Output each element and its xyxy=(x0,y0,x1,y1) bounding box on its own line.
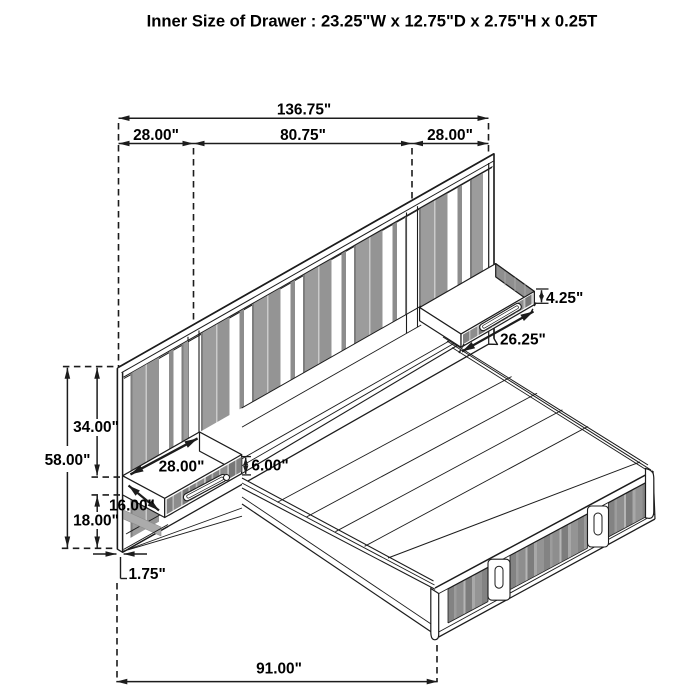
svg-text:58.00": 58.00" xyxy=(45,452,91,469)
svg-text:18.00": 18.00" xyxy=(73,512,119,529)
svg-text:28.00": 28.00" xyxy=(427,127,473,144)
svg-text:16.00": 16.00" xyxy=(109,498,155,515)
svg-text:80.75": 80.75" xyxy=(280,127,326,144)
svg-text:1.75": 1.75" xyxy=(129,566,166,583)
svg-text:26.25": 26.25" xyxy=(500,331,546,348)
svg-text:28.00": 28.00" xyxy=(133,127,179,144)
svg-text:136.75": 136.75" xyxy=(277,102,331,119)
svg-text:34.00": 34.00" xyxy=(73,419,119,436)
svg-text:28.00": 28.00" xyxy=(159,458,205,475)
svg-text:91.00": 91.00" xyxy=(256,660,302,677)
svg-text:6.00": 6.00" xyxy=(251,457,288,474)
svg-text:Inner Size of Drawer : 23.25"W: Inner Size of Drawer : 23.25"W x 12.75"D… xyxy=(147,12,598,31)
svg-text:4.25": 4.25" xyxy=(546,290,583,307)
